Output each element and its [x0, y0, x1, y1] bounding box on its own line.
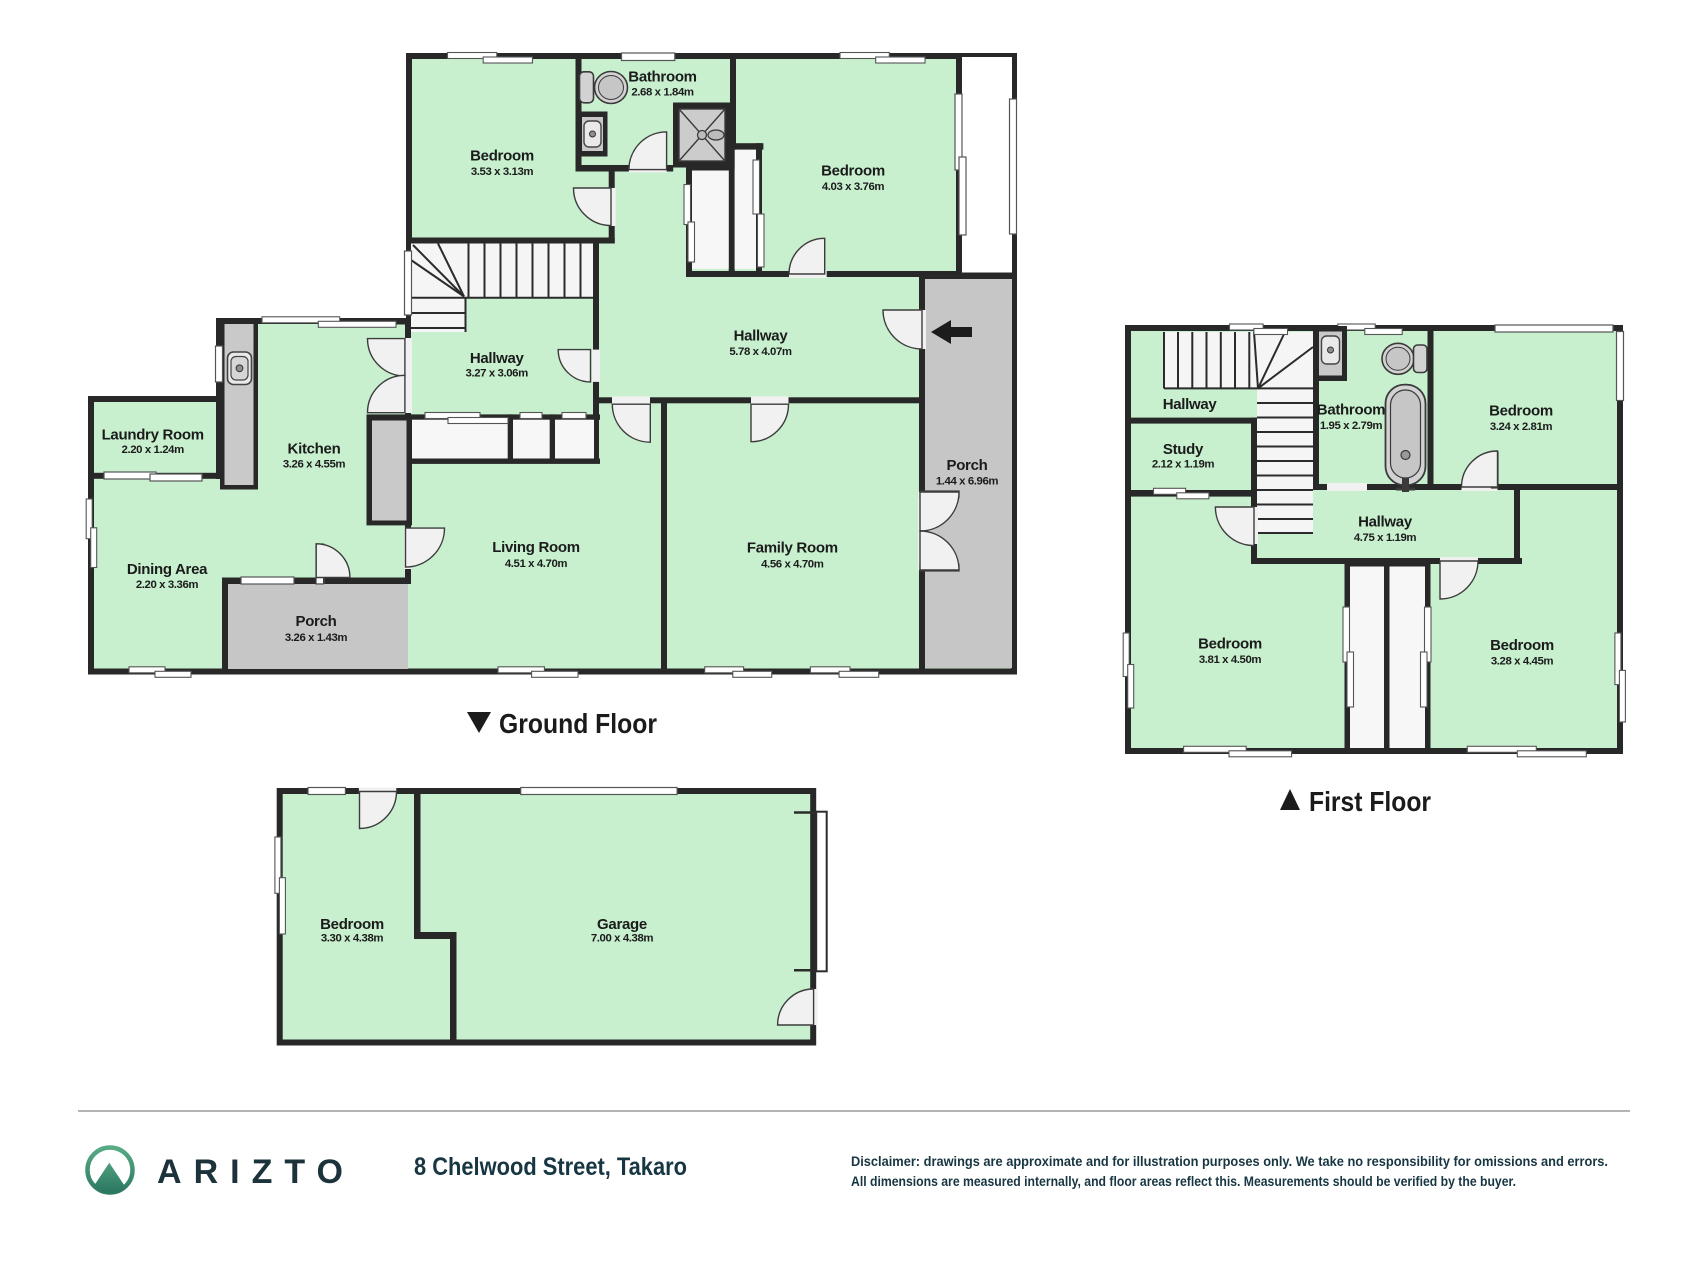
svg-text:Garage: Garage — [597, 916, 647, 933]
svg-text:Dining Area: Dining Area — [127, 561, 208, 578]
svg-text:Bedroom: Bedroom — [470, 147, 534, 164]
svg-text:Bathroom: Bathroom — [628, 69, 696, 86]
svg-text:Hallway: Hallway — [1163, 396, 1218, 413]
svg-text:2.20 x 3.36m: 2.20 x 3.36m — [136, 579, 199, 591]
svg-text:Ground Floor: Ground Floor — [499, 708, 657, 739]
svg-text:3.81 x 4.50m: 3.81 x 4.50m — [1199, 654, 1262, 666]
svg-text:4.56 x 4.70m: 4.56 x 4.70m — [761, 558, 824, 570]
svg-text:3.28 x 4.45m: 3.28 x 4.45m — [1491, 656, 1554, 668]
svg-text:3.24 x 2.81m: 3.24 x 2.81m — [1490, 421, 1553, 433]
svg-text:Bedroom: Bedroom — [1490, 637, 1554, 654]
svg-text:4.75 x 1.19m: 4.75 x 1.19m — [1354, 532, 1417, 544]
svg-text:All dimensions are measured in: All dimensions are measured internally, … — [851, 1174, 1516, 1190]
svg-text:2.20 x 1.24m: 2.20 x 1.24m — [122, 444, 185, 456]
svg-text:Laundry Room: Laundry Room — [102, 427, 204, 444]
svg-text:Bedroom: Bedroom — [1198, 635, 1262, 652]
svg-text:Bedroom: Bedroom — [821, 162, 885, 179]
svg-text:Bathroom: Bathroom — [1317, 401, 1385, 418]
svg-text:Porch: Porch — [295, 613, 336, 630]
svg-text:Hallway: Hallway — [734, 327, 789, 344]
svg-text:Porch: Porch — [946, 457, 987, 474]
svg-text:Family Room: Family Room — [747, 539, 838, 556]
svg-text:Kitchen: Kitchen — [288, 441, 341, 458]
svg-text:5.78 x 4.07m: 5.78 x 4.07m — [729, 346, 792, 358]
svg-text:Living Room: Living Room — [492, 539, 580, 556]
svg-text:4.03 x 3.76m: 4.03 x 3.76m — [822, 181, 885, 193]
svg-text:1.95 x 2.79m: 1.95 x 2.79m — [1320, 420, 1383, 432]
svg-text:3.30 x 4.38m: 3.30 x 4.38m — [321, 933, 384, 945]
svg-text:4.51 x 4.70m: 4.51 x 4.70m — [505, 558, 568, 570]
svg-text:Hallway: Hallway — [470, 350, 525, 367]
svg-text:3.26 x 1.43m: 3.26 x 1.43m — [285, 632, 348, 644]
svg-text:Disclaimer: drawings are appro: Disclaimer: drawings are approximate and… — [851, 1154, 1608, 1170]
svg-text:3.27 x 3.06m: 3.27 x 3.06m — [466, 368, 529, 380]
svg-text:Hallway: Hallway — [1358, 513, 1413, 530]
svg-text:3.53 x 3.13m: 3.53 x 3.13m — [471, 166, 534, 178]
svg-text:Study: Study — [1163, 441, 1204, 458]
svg-text:2.12 x 1.19m: 2.12 x 1.19m — [1152, 459, 1215, 471]
svg-text:7.00 x 4.38m: 7.00 x 4.38m — [591, 933, 654, 945]
svg-text:2.68 x 1.84m: 2.68 x 1.84m — [631, 87, 694, 99]
svg-text:8 Chelwood Street, Takaro: 8 Chelwood Street, Takaro — [414, 1153, 687, 1181]
svg-text:Bedroom: Bedroom — [1489, 403, 1553, 420]
svg-text:Bedroom: Bedroom — [320, 916, 384, 933]
svg-text:1.44 x 6.96m: 1.44 x 6.96m — [936, 475, 999, 487]
svg-text:3.26 x 4.55m: 3.26 x 4.55m — [283, 459, 346, 471]
svg-text:First Floor: First Floor — [1309, 786, 1431, 817]
